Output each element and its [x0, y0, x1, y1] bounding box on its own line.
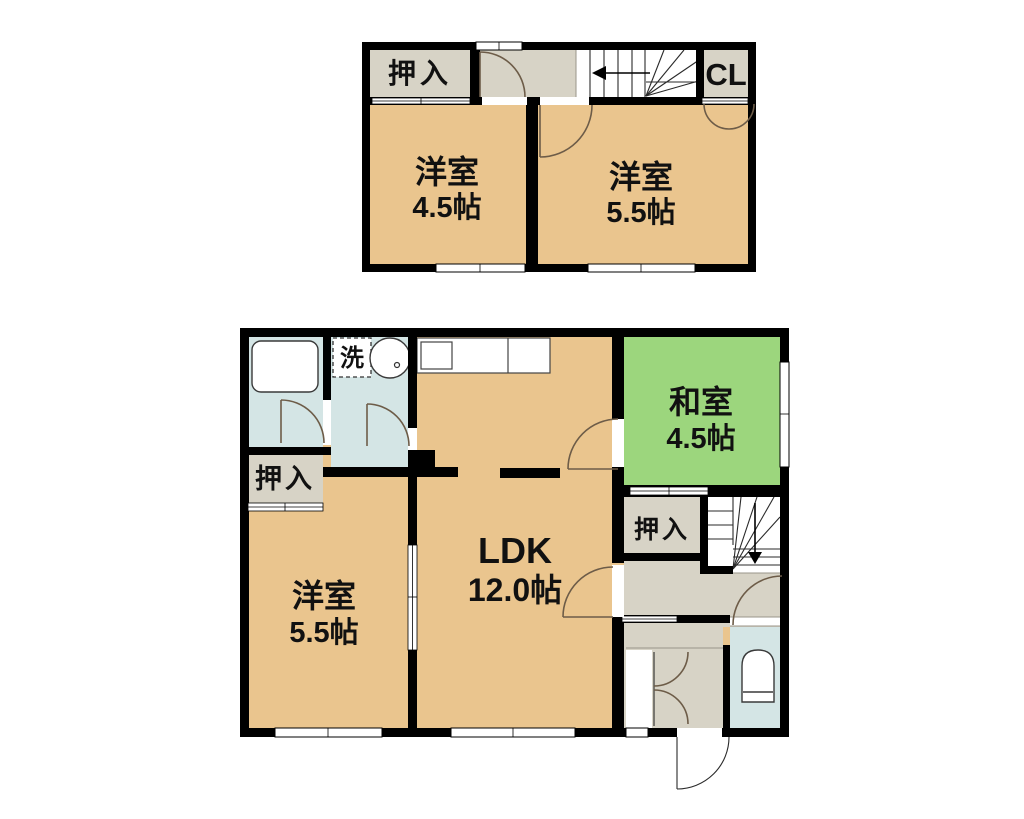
- label-western-2f-left-size: 4.5帖: [412, 191, 481, 224]
- sliding-door-closet-1f-left: [248, 503, 323, 511]
- door-opening-entrance: [677, 728, 722, 737]
- entrance-door-icon: [677, 737, 729, 789]
- sliding-door-western-1f-ldk: [408, 545, 417, 650]
- label-western-1f-name: 洋室: [292, 578, 356, 614]
- label-japanese-size: 4.5帖: [666, 422, 735, 455]
- label-closet-2f: 押入: [388, 57, 452, 89]
- sliding-door-cl: [702, 98, 748, 104]
- room-stairs-2f: [576, 50, 702, 105]
- label-japanese-name: 和室: [669, 384, 733, 420]
- toilet-bowl-icon: [742, 650, 774, 702]
- label-western-2f-right-name: 洋室: [609, 159, 673, 195]
- sliding-door-hall-entrance: [622, 616, 677, 622]
- bathtub-icon: [252, 341, 318, 392]
- label-cl: CL: [705, 57, 746, 92]
- window-1f-japanese-right: [780, 362, 789, 467]
- kitchen-counter-icon: [417, 338, 550, 373]
- floor-1f: 洗 押入 洋室 5.5帖 LDK 12.0帖 和室 4.5帖 押入: [240, 328, 789, 789]
- window-2f-bottom-left: [436, 264, 525, 272]
- door-opening-washroom: [408, 428, 417, 450]
- window-2f-top: [476, 42, 522, 50]
- door-opening-western-2f-left: [482, 97, 527, 105]
- door-opening-ldk: [612, 565, 624, 617]
- room-hall-2f: [472, 50, 576, 105]
- label-western-2f-left-name: 洋室: [415, 154, 479, 190]
- door-opening-toilet: [730, 617, 780, 626]
- label-ldk-size: 12.0帖: [468, 572, 562, 608]
- floor-2f: 押入 CL 洋室 4.5帖 洋室 5.5帖: [362, 42, 756, 272]
- entrance-floor-area: [626, 650, 652, 728]
- sliding-door-closet-2f: [372, 98, 470, 104]
- floor-plan-canvas: 押入 CL 洋室 4.5帖 洋室 5.5帖: [0, 0, 1024, 819]
- floor-plan-drawing: 押入 CL 洋室 4.5帖 洋室 5.5帖: [0, 0, 1024, 819]
- label-closet-1f-left: 押入: [255, 464, 315, 494]
- sink-icon: [370, 338, 410, 378]
- door-opening-western-2f-right: [540, 97, 589, 105]
- window-1f-entrance-side: [626, 728, 648, 737]
- sliding-door-japanese-room: [630, 487, 708, 495]
- label-ldk-name: LDK: [478, 530, 552, 571]
- window-1f-ldk-bottom: [451, 728, 575, 737]
- room-hall-1f: [624, 560, 708, 615]
- door-opening-japanese-room: [612, 419, 624, 467]
- label-laundry: 洗: [340, 345, 364, 372]
- window-2f-bottom-right: [588, 264, 695, 272]
- label-western-2f-right-size: 5.5帖: [606, 196, 675, 229]
- label-closet-1f-right: 押入: [634, 516, 690, 544]
- label-western-1f-size: 5.5帖: [289, 616, 358, 649]
- window-1f-western-bottom: [275, 728, 382, 737]
